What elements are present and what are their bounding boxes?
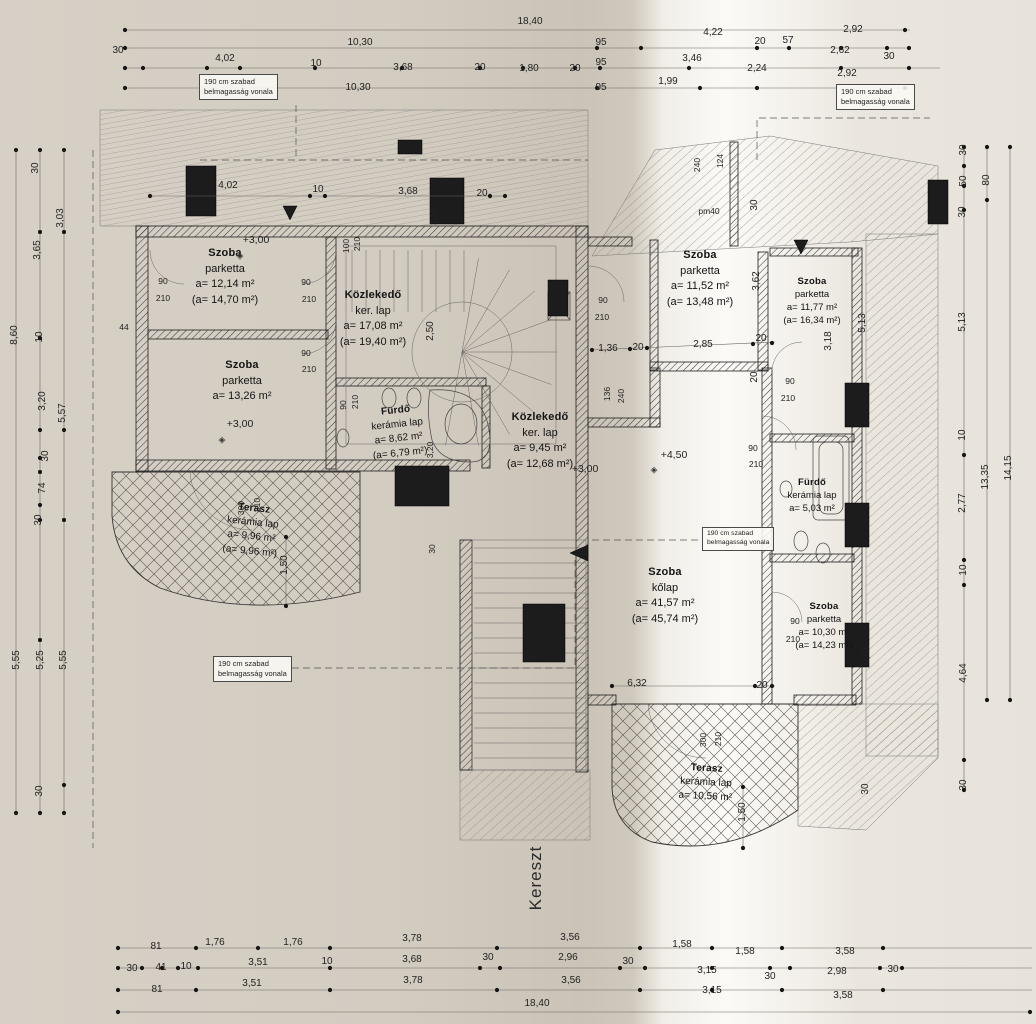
dim-label: 4,64 (862, 645, 872, 664)
dim-label: 30 (126, 964, 137, 974)
dim-label: 20 (754, 37, 765, 47)
dim-label: 2,50 (426, 321, 436, 340)
dim-label: 4,64 (959, 663, 969, 682)
dim-label: 10 (321, 957, 332, 967)
dim-label: 1,58 (735, 947, 754, 957)
dim-label: 3,18 (824, 331, 834, 350)
level-mark-icon: ◈ (651, 466, 658, 475)
dim-label: 210 (786, 635, 800, 644)
dim-label: 10,30 (347, 38, 372, 48)
dim-label: 30 (958, 206, 968, 217)
dim-label: +3,00 (572, 464, 599, 475)
dim-label: 20 (750, 371, 760, 382)
dim-label: 210 (595, 313, 609, 322)
dim-label: 30 (622, 957, 633, 967)
dim-label: 30 (41, 450, 51, 461)
dim-label: 1,80 (519, 64, 538, 74)
dim-label: 1,76 (283, 938, 302, 948)
dim-label: 1,10 (429, 209, 438, 226)
dim-label: 2,92 (837, 69, 856, 79)
dim-label: 3,20 (38, 391, 48, 410)
dim-label: 3,58 (835, 947, 854, 957)
dim-label: 3,56 (560, 933, 579, 943)
dim-label: 90 (158, 277, 167, 286)
dim-label: 210 (253, 498, 262, 512)
dim-label: 30 (750, 199, 760, 210)
dim-label: 5,55 (59, 650, 69, 669)
dim-label: 136 (603, 387, 612, 401)
dim-label: 1,50 (280, 555, 290, 574)
level-mark-icon: ◈ (219, 436, 226, 445)
dim-label: 10 (310, 59, 321, 69)
dim-label: 50 (959, 175, 969, 186)
dim-label: 8,60 (10, 325, 20, 344)
dim-label: 5,57 (58, 403, 68, 422)
dim-label: 30 (959, 144, 969, 155)
dim-label: 10 (35, 331, 45, 342)
dim-label: 20 (569, 64, 580, 74)
dim-label: 300 (237, 501, 246, 515)
dim-label: 18,40 (517, 17, 542, 27)
level-mark-icon: ◈ (237, 252, 244, 261)
dim-label: 30 (959, 779, 969, 790)
dim-label: 210 (353, 237, 362, 251)
dim-label: 90 (785, 377, 794, 386)
floorplan-page: Szoba parketta a= 12,14 m² (a= 14,70 m²)… (0, 0, 1036, 1024)
dim-label: 3,20 (426, 442, 435, 459)
dim-label: 3,78 (403, 976, 422, 986)
dim-label: 10 (958, 429, 968, 440)
dim-label: 20 (755, 334, 766, 344)
dim-label: 3,58 (833, 991, 852, 1001)
dim-label: 3,15 (697, 966, 716, 976)
dim-label: 95 (595, 58, 606, 68)
dim-label: 30 (112, 46, 123, 56)
dim-label: 81 (150, 942, 161, 952)
dim-label: 30 (34, 514, 44, 525)
dim-label: 81 (151, 985, 162, 995)
dim-label: 210 (749, 460, 763, 469)
dim-label: 30 (883, 52, 894, 62)
dim-label: 90 (301, 349, 310, 358)
dim-label: +3,00 (243, 235, 270, 246)
dim-label: 2,77 (958, 493, 968, 512)
dim-label: 30 (31, 162, 41, 173)
dim-label: 10 (959, 564, 969, 575)
dim-label: 124 (716, 154, 725, 168)
dim-label: 6,32 (627, 679, 646, 689)
dim-label: 10 (180, 962, 191, 972)
dim-label: 2,85 (693, 340, 712, 350)
dim-label: 3,15 (702, 986, 721, 996)
dim-label: 210 (302, 365, 316, 374)
dim-label: 20 (632, 343, 643, 353)
dim-label: 30 (428, 544, 437, 553)
dim-label: 4,02 (215, 54, 234, 64)
dim-label: 3,65 (33, 240, 43, 259)
dim-label: 3,51 (248, 958, 267, 968)
dim-label: 30 (887, 965, 898, 975)
dim-label: 210 (351, 395, 360, 409)
dim-label: 210 (714, 732, 723, 746)
dim-label: 18,40 (524, 999, 549, 1009)
dim-label: 20 (476, 189, 487, 199)
dim-label: 5,25 (36, 650, 46, 669)
dim-label: 3,68 (393, 63, 412, 73)
dim-label: 74 (38, 482, 48, 493)
dim-label: 30 (764, 972, 775, 982)
dim-label: 44 (119, 323, 128, 332)
dim-label: 80 (982, 174, 992, 185)
dim-label: 4,02 (218, 181, 237, 191)
dim-label: 3,46 (682, 54, 701, 64)
dim-label: +3,00 (227, 419, 254, 430)
dim-label: 4,22 (703, 28, 722, 38)
dim-label: 1,58 (672, 940, 691, 950)
dim-label: 100 (342, 239, 351, 253)
dim-label: pm40 (698, 207, 719, 216)
dim-label: 3,56 (561, 976, 580, 986)
dim-label: 10,30 (345, 83, 370, 93)
dim-label: 1,36 (598, 344, 617, 354)
dim-label: 30 (35, 785, 45, 796)
dim-label: 95 (595, 38, 606, 48)
dim-label: 240 (617, 389, 626, 403)
dim-label: 3,62 (752, 271, 762, 290)
dim-label: 1,76 (205, 938, 224, 948)
dim-label: 95 (595, 83, 606, 93)
annotation-layer: 18,4010,304,222,929520572,6230304,02103,… (0, 0, 1036, 1024)
dim-label: 240 (693, 158, 702, 172)
dim-label: 90 (748, 444, 757, 453)
dim-label: 2,62 (830, 46, 849, 56)
dim-label: 2,92 (843, 25, 862, 35)
dim-label: 210 (781, 394, 795, 403)
dim-label: 41 (155, 963, 166, 973)
dim-label: 3,51 (242, 979, 261, 989)
dim-label: 90 (790, 617, 799, 626)
dim-label: 90 (598, 296, 607, 305)
dim-label: 13,35 (981, 464, 991, 489)
dim-label: 20 (474, 63, 485, 73)
dim-label: 210 (302, 295, 316, 304)
dim-label: +4,50 (661, 450, 688, 461)
dim-label: 57 (782, 36, 793, 46)
dim-label: 30 (482, 953, 493, 963)
dim-label: 10 (312, 185, 323, 195)
dim-label: 30 (861, 783, 871, 794)
dim-label: 1,99 (658, 77, 677, 87)
dim-label: 2,98 (827, 967, 846, 977)
dim-label: 300 (699, 733, 708, 747)
dim-label: 90 (301, 278, 310, 287)
dim-label: 90 (339, 400, 348, 409)
dim-label: 2,24 (747, 64, 766, 74)
dim-label: 5,13 (858, 313, 868, 332)
dim-label: 5,55 (12, 650, 22, 669)
dim-label: 3,68 (402, 955, 421, 965)
dim-label: 3,68 (398, 187, 417, 197)
dim-label: 20 (756, 681, 767, 691)
dim-label: 2,96 (558, 953, 577, 963)
dim-label: 5,13 (958, 312, 968, 331)
dim-label: 14,15 (1004, 455, 1014, 480)
dim-label: 3,78 (402, 934, 421, 944)
dim-label: 210 (156, 294, 170, 303)
dim-label: 1,50 (738, 802, 748, 821)
dim-label: 3,03 (56, 208, 66, 227)
